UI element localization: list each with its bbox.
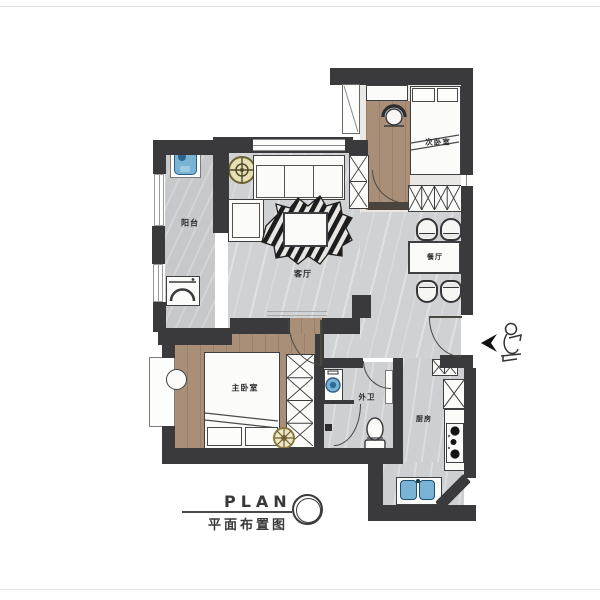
wall-balcony-left-2 xyxy=(152,226,165,264)
plan-title: PLAN xyxy=(224,492,292,511)
potted-plant-icon xyxy=(273,427,295,449)
dining-chair xyxy=(416,280,438,303)
gas-stove-icon xyxy=(446,423,464,463)
entry-arrow-icon xyxy=(481,334,497,352)
shoe-cabinet xyxy=(349,155,369,209)
wardrobe-x-pattern xyxy=(409,186,460,210)
wall-bedroom2-top xyxy=(330,68,473,85)
window-balcony-2 xyxy=(153,264,163,302)
fridge-x-pattern xyxy=(444,380,464,407)
wall-bath-column xyxy=(352,295,371,318)
wall-right-upper xyxy=(461,72,473,175)
room-label-balcony: 阳台 xyxy=(181,218,199,229)
wall-bath-top xyxy=(324,358,363,368)
room-label-bathroom: 外卫 xyxy=(359,392,376,403)
side-table-inner xyxy=(232,203,260,238)
kitchen-sink-basin-icon xyxy=(400,480,417,500)
plan-title-divider xyxy=(182,511,292,513)
plan-subtitle: 平面布置图 xyxy=(208,514,288,533)
door-leaf-entry xyxy=(429,316,462,318)
dining-chair xyxy=(440,218,462,241)
bath-washer-icon xyxy=(325,370,341,399)
wall-balcony-left-1 xyxy=(153,140,166,174)
plant-cross-icon xyxy=(275,429,293,447)
window-sofa xyxy=(253,139,345,151)
dining-chair xyxy=(416,218,438,241)
window-bedroom2-right xyxy=(461,175,473,186)
page-edge-top xyxy=(0,6,600,7)
pillow xyxy=(207,427,242,446)
sink-ledge xyxy=(180,166,190,172)
room-label-living-room: 客厅 xyxy=(294,269,312,280)
toilet-icon xyxy=(361,416,389,452)
plan-circle-icon xyxy=(292,494,323,525)
wall-balcony-left-3 xyxy=(153,302,166,332)
wall-master-top-left xyxy=(230,318,290,334)
stove-burners-icon xyxy=(447,424,462,461)
potted-plant-icon xyxy=(228,156,256,184)
washing-machine-icon xyxy=(166,276,200,306)
wall-living-balcony-divider xyxy=(213,145,229,233)
faucet-icon xyxy=(325,424,332,431)
vanity-stool-icon xyxy=(166,369,187,390)
cabinet-x-pattern xyxy=(350,156,367,207)
wall-kitchen-right xyxy=(464,368,476,478)
wall-master-bottom xyxy=(170,448,403,464)
threshold-line xyxy=(267,311,327,316)
duct-shaft xyxy=(342,84,360,134)
room-label-master-bedroom: 主卧室 xyxy=(232,383,259,394)
room-label-second-bedroom: 次卧室 xyxy=(425,137,451,148)
tub-chair-icon xyxy=(379,102,409,130)
pillow xyxy=(437,88,458,102)
refrigerator-icon xyxy=(443,379,466,409)
floor-plan-image: 阳台 客厅 次卧室 餐厅 主卧室 外卫 厨房 PLAN 平面布置图 xyxy=(0,0,600,600)
pillow xyxy=(412,88,435,102)
window-balcony-1 xyxy=(154,174,164,226)
wall-master-top-right xyxy=(322,318,360,334)
vanity-desk xyxy=(149,357,175,427)
room-label-kitchen: 厨房 xyxy=(416,414,432,424)
coffee-table xyxy=(283,212,328,247)
wall-right-mid xyxy=(461,186,473,315)
kitchen-sink-basin-icon xyxy=(419,480,435,500)
bath-washer-box xyxy=(324,369,343,401)
second-bedroom-wardrobe xyxy=(408,185,462,212)
room-label-dining-room: 餐厅 xyxy=(427,252,443,262)
shaft-diagonal xyxy=(343,85,359,133)
page-edge-bottom xyxy=(0,589,600,590)
faucet-icon xyxy=(416,479,420,483)
wall-entry-lintel xyxy=(440,355,473,368)
dining-chair xyxy=(440,280,462,303)
entry-figure-icon xyxy=(496,320,526,364)
wall-corridor-corner xyxy=(349,140,368,155)
wall-master-left-bot xyxy=(162,426,175,464)
door-leaf-master xyxy=(320,320,322,366)
wall-kitchen-diagonal xyxy=(436,474,470,508)
wall-bath-kitchen xyxy=(393,358,403,458)
second-bedroom-desk xyxy=(366,85,408,101)
plant-cross-icon xyxy=(230,158,254,182)
washing-machine-door-icon xyxy=(167,277,198,304)
wall-balcony-bottom xyxy=(158,328,232,345)
